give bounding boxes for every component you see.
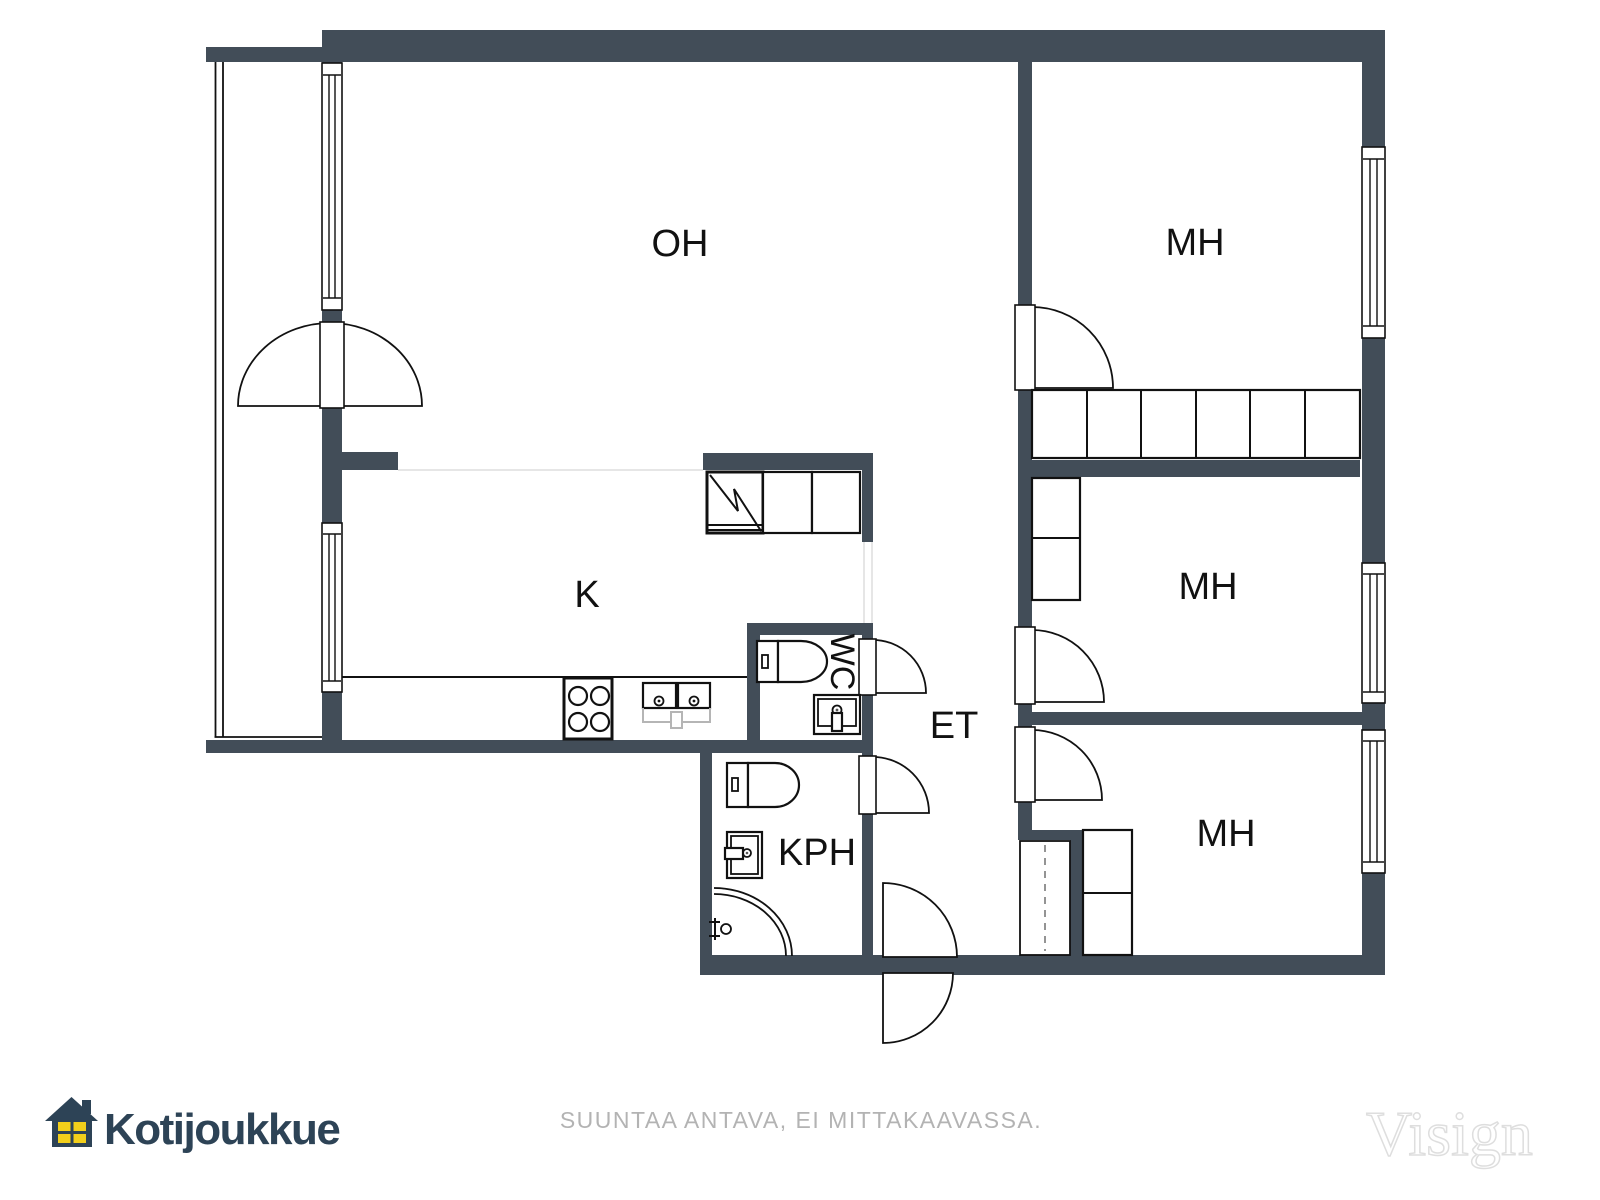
wardrobe-row-mh-top <box>1032 390 1360 458</box>
door-swing-kph <box>859 756 929 814</box>
room-label-mh-top: MH <box>1165 222 1224 264</box>
room-label-oh: OH <box>652 223 709 265</box>
washbasin-icon <box>814 695 860 734</box>
window <box>1362 730 1385 873</box>
house-icon <box>45 1097 98 1147</box>
kitchen-sink-icon <box>643 683 710 728</box>
room-label-k: K <box>574 574 599 616</box>
stove-icon <box>564 678 612 739</box>
wardrobe-mh-bottom <box>1083 830 1132 955</box>
door-swing-mh-mid <box>1015 627 1104 704</box>
balcony-door-swing <box>238 322 422 408</box>
window <box>1362 563 1385 703</box>
shower-icon <box>709 888 792 956</box>
wardrobe-mh-mid <box>1032 478 1080 600</box>
disclaimer-text: SUUNTAA ANTAVA, EI MITTAKAAVASSA. <box>560 1107 1042 1133</box>
door-swing-mh-bottom <box>1015 727 1102 802</box>
window <box>322 63 342 310</box>
washbasin-icon <box>725 832 762 878</box>
kotijoukkue-logo: Kotijoukkue <box>45 1097 339 1154</box>
door-swing-mh-top <box>1015 305 1113 390</box>
toilet-icon <box>757 641 827 682</box>
room-label-mh-mid: MH <box>1178 566 1237 608</box>
room-label-wc: WC <box>823 634 861 691</box>
visign-watermark: Visign <box>1366 1098 1533 1169</box>
door-swing-wc <box>859 639 926 695</box>
closet-et <box>1020 841 1070 955</box>
floorplan-canvas: OH MH K MH WC ET KPH MH Kotijoukkue SUUN… <box>0 0 1600 1200</box>
window <box>322 523 342 692</box>
toilet-icon <box>727 763 799 807</box>
fridge-icon <box>707 472 860 533</box>
floor-plan: OH MH K MH WC ET KPH MH Kotijoukkue SUUN… <box>0 0 1600 1200</box>
room-label-et: ET <box>930 705 979 747</box>
brand-name: Kotijoukkue <box>104 1105 339 1154</box>
window <box>1362 147 1385 338</box>
room-label-mh-bottom: MH <box>1196 813 1255 855</box>
room-label-kph: KPH <box>778 832 856 874</box>
